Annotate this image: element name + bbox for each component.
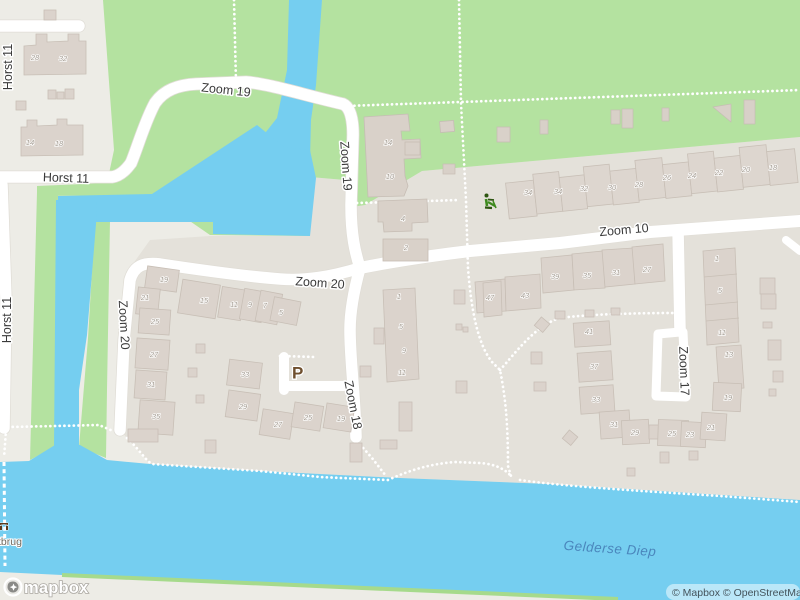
svg-text:Zoom 17: Zoom 17 [676,346,692,396]
svg-text:33: 33 [241,370,250,379]
svg-text:© Mapbox © OpenStreetMap: © Mapbox © OpenStreetMap [672,587,800,599]
svg-text:41: 41 [585,327,593,336]
svg-text:25: 25 [150,317,160,326]
svg-text:27: 27 [273,420,283,429]
svg-text:11: 11 [718,328,726,337]
svg-text:22: 22 [714,168,724,177]
svg-text:29: 29 [238,402,248,411]
svg-text:28: 28 [30,53,40,62]
svg-text:1: 1 [715,254,719,263]
svg-text:21: 21 [140,293,149,302]
svg-text:14: 14 [384,138,392,147]
svg-text:15: 15 [200,296,209,305]
svg-text:32: 32 [580,184,589,193]
svg-text:23: 23 [685,430,695,439]
svg-text:4: 4 [401,214,405,223]
svg-text:31: 31 [610,420,618,429]
svg-text:21: 21 [706,423,715,432]
svg-text:30: 30 [608,183,617,192]
svg-text:1: 1 [397,292,401,301]
svg-text:33: 33 [592,395,601,404]
svg-text:11: 11 [398,368,406,377]
svg-text:35: 35 [583,271,592,280]
svg-text:14: 14 [26,138,34,147]
svg-text:31: 31 [147,380,155,389]
svg-text:31: 31 [612,268,620,277]
svg-text:28: 28 [634,180,644,189]
svg-text:Zoom 20: Zoom 20 [116,300,133,350]
svg-text:P: P [292,364,303,383]
svg-text:Horst 11: Horst 11 [1,44,15,90]
svg-text:27: 27 [642,265,652,274]
svg-text:29: 29 [630,428,640,437]
svg-text:18: 18 [55,139,64,148]
svg-text:34: 34 [554,187,562,196]
svg-text:26: 26 [662,173,672,182]
svg-text:27: 27 [149,350,159,359]
svg-text:10: 10 [386,172,395,181]
svg-text:19: 19 [724,393,733,402]
svg-text:mapbox: mapbox [24,579,89,597]
svg-text:47: 47 [486,293,495,302]
svg-text:35: 35 [152,412,161,421]
svg-text:39: 39 [551,272,560,281]
svg-text:11: 11 [230,300,238,309]
svg-text:2: 2 [403,243,409,252]
svg-text:tbrug: tbrug [0,536,22,548]
svg-text:34: 34 [524,188,532,197]
svg-text:25: 25 [303,413,313,422]
svg-text:37: 37 [590,362,599,371]
svg-text:19: 19 [337,414,346,423]
svg-text:18: 18 [769,163,778,172]
svg-text:Horst 11: Horst 11 [43,170,90,186]
svg-text:Horst 11: Horst 11 [0,297,14,343]
svg-text:32: 32 [59,54,68,63]
svg-text:13: 13 [725,350,734,359]
svg-text:24: 24 [687,171,696,180]
svg-text:25: 25 [667,429,677,438]
svg-text:19: 19 [160,275,169,284]
svg-text:43: 43 [521,291,530,300]
svg-text:20: 20 [741,165,751,174]
